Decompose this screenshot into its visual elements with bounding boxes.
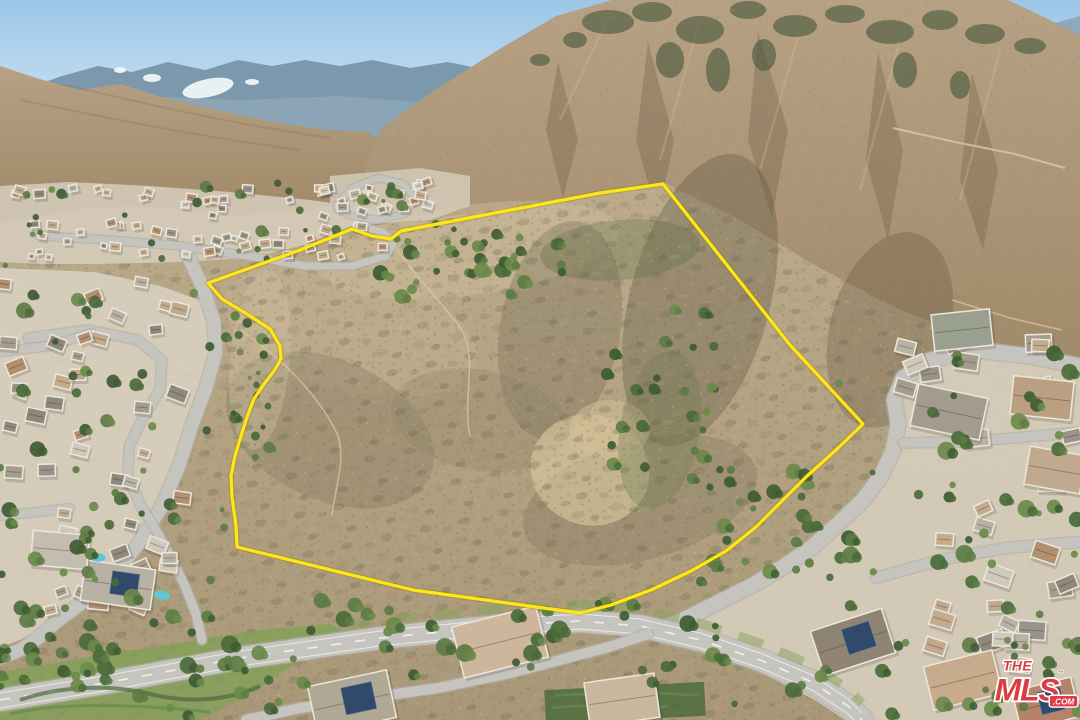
house (56, 507, 73, 522)
mls-logo-com: .COM (1053, 698, 1075, 707)
house (108, 241, 124, 255)
mls-logo-graphic: THE MLS ™ .COM (996, 654, 1080, 714)
house (133, 400, 154, 418)
house (209, 195, 222, 208)
house (161, 552, 180, 568)
house (37, 463, 58, 480)
house (272, 239, 286, 252)
house (0, 277, 14, 294)
house (0, 335, 20, 353)
house (164, 227, 180, 242)
mls-logo-tm: ™ (1057, 670, 1063, 677)
house (3, 464, 26, 483)
house (45, 220, 61, 234)
aerial-scene (0, 0, 1080, 720)
house (934, 532, 956, 550)
aerial-listing-photo: THE MLS ™ .COM (0, 0, 1080, 720)
house (930, 308, 996, 355)
mls-watermark: THE MLS ™ .COM (996, 654, 1080, 714)
